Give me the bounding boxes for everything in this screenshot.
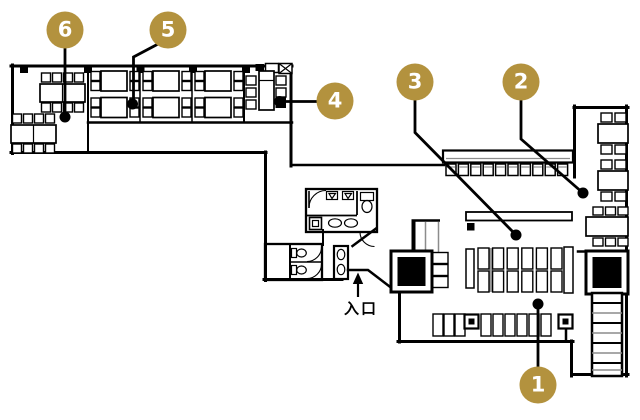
area-marker-5: 5 (150, 12, 187, 49)
area-marker-4: 4 (317, 83, 354, 120)
section5-table-bays (91, 71, 243, 118)
floor-plan-drawing (0, 0, 640, 420)
restrooms (265, 189, 377, 280)
right-wing-tables (586, 113, 628, 246)
long-thin-table (466, 212, 572, 231)
entrance-label: 入口 (344, 298, 378, 319)
center-table-block (466, 247, 573, 293)
entrance-arrow-icon (353, 273, 363, 298)
stairs-icon (592, 293, 622, 376)
toilet-icon (361, 193, 374, 213)
bottom-table-row (433, 314, 573, 336)
section6-tables (11, 73, 85, 153)
urinal-icon (327, 192, 354, 200)
area-marker-2: 2 (503, 64, 540, 101)
sink-icon (310, 218, 358, 230)
service-shaft-icon (279, 64, 292, 74)
counter-bar (443, 151, 573, 176)
section4-room (246, 64, 292, 111)
area-marker-3: 3 (397, 64, 434, 101)
floor-plan-diagram: 1 2 3 4 5 6 入口 (0, 0, 640, 420)
column-pillar-right (586, 251, 628, 294)
column-pillar-entrance (391, 251, 432, 292)
area-marker-1: 1 (520, 367, 557, 404)
area-marker-6: 6 (47, 12, 84, 49)
